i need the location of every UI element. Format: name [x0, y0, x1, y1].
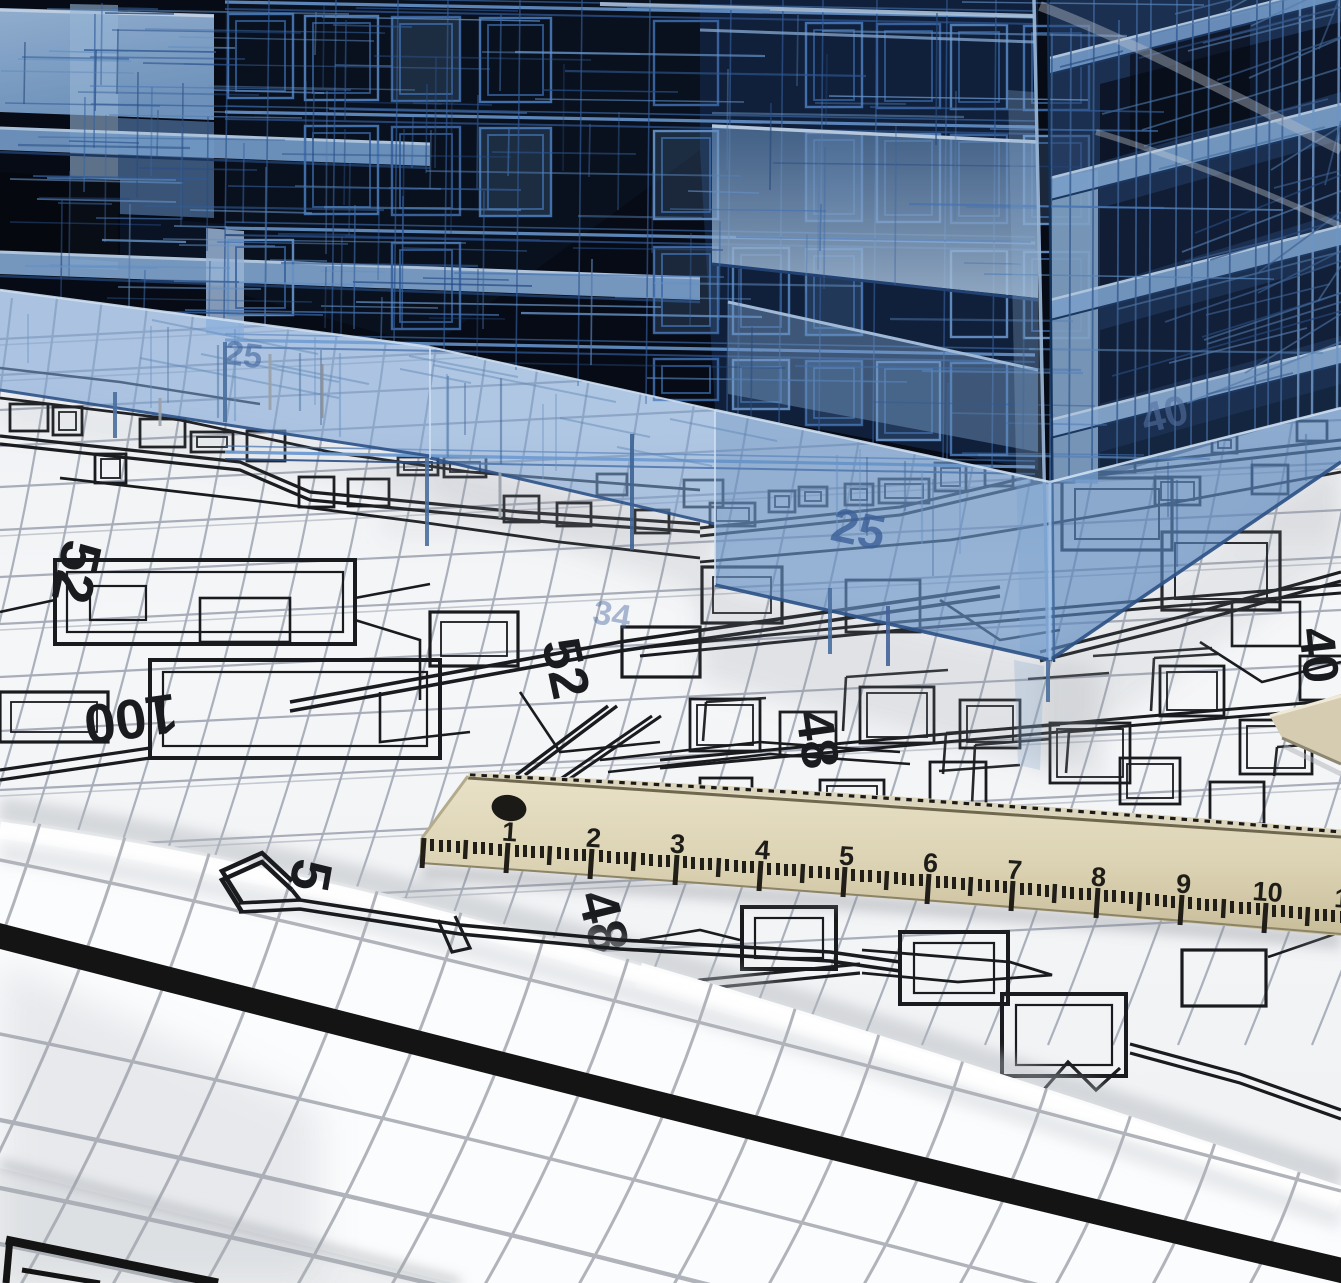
svg-text:52: 52	[530, 633, 601, 704]
svg-text:48: 48	[784, 707, 849, 772]
svg-text:3: 3	[669, 829, 686, 860]
svg-text:11: 11	[1333, 883, 1341, 915]
svg-text:25: 25	[222, 334, 265, 377]
svg-text:25: 25	[827, 498, 890, 561]
svg-text:2: 2	[585, 823, 602, 854]
svg-text:7: 7	[1006, 855, 1023, 886]
svg-text:1: 1	[501, 817, 518, 848]
svg-text:34: 34	[590, 593, 634, 637]
svg-text:40: 40	[1288, 625, 1341, 686]
svg-text:5: 5	[838, 841, 855, 872]
svg-text:4: 4	[754, 835, 771, 866]
svg-text:6: 6	[922, 848, 939, 879]
svg-text:52: 52	[40, 535, 115, 609]
svg-text:9: 9	[1175, 869, 1192, 900]
svg-text:8: 8	[1090, 862, 1107, 893]
svg-text:100: 100	[80, 682, 181, 757]
svg-text:10: 10	[1252, 876, 1284, 908]
